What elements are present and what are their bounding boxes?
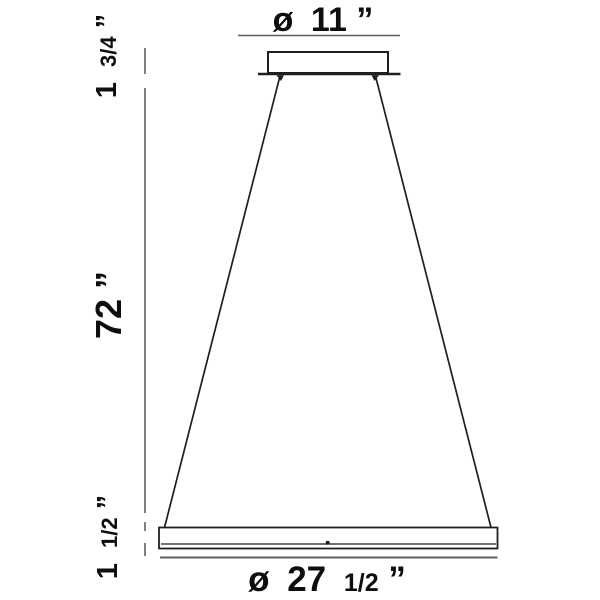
canopy-outline bbox=[268, 52, 388, 73]
inch-mark: ” bbox=[356, 1, 373, 39]
canopy-height-label: 1 3/4 ” bbox=[91, 14, 123, 98]
drop-length-label: 72 ” bbox=[88, 271, 129, 339]
inch-mark: ” bbox=[91, 14, 123, 29]
diameter-symbol: ø bbox=[248, 560, 270, 599]
inch-mark: ” bbox=[388, 560, 406, 599]
inch-mark: ” bbox=[92, 495, 124, 510]
canopy-diameter-label: ø 11 ” bbox=[273, 1, 374, 39]
canopy-height-value: 1 bbox=[91, 82, 123, 98]
ring-outline bbox=[159, 528, 498, 549]
ring-height-label: 1 1/2 ” bbox=[92, 495, 124, 579]
diameter-symbol: ø bbox=[273, 1, 294, 39]
dimension-diagram: ø 11 ” ø 27 1/2 ” bbox=[0, 0, 600, 600]
ring-diameter-label: ø 27 1/2 ” bbox=[248, 560, 406, 599]
canopy-diameter-value: 11 bbox=[311, 1, 347, 39]
ring-diameter-fraction: 1/2 bbox=[344, 569, 379, 597]
ring-height-fraction: 1/2 bbox=[97, 517, 122, 548]
right-cable bbox=[376, 76, 492, 528]
diagram-canvas: ø 11 ” ø 27 1/2 ” bbox=[0, 0, 600, 600]
ring-center-mark bbox=[326, 541, 330, 545]
inch-mark: ” bbox=[88, 271, 129, 289]
ring-height-value: 1 bbox=[92, 563, 124, 579]
drop-length-value: 72 bbox=[88, 299, 129, 339]
left-cable bbox=[165, 76, 281, 528]
ring-diameter-value: 27 bbox=[287, 560, 326, 599]
canopy-height-fraction: 3/4 bbox=[96, 36, 121, 67]
